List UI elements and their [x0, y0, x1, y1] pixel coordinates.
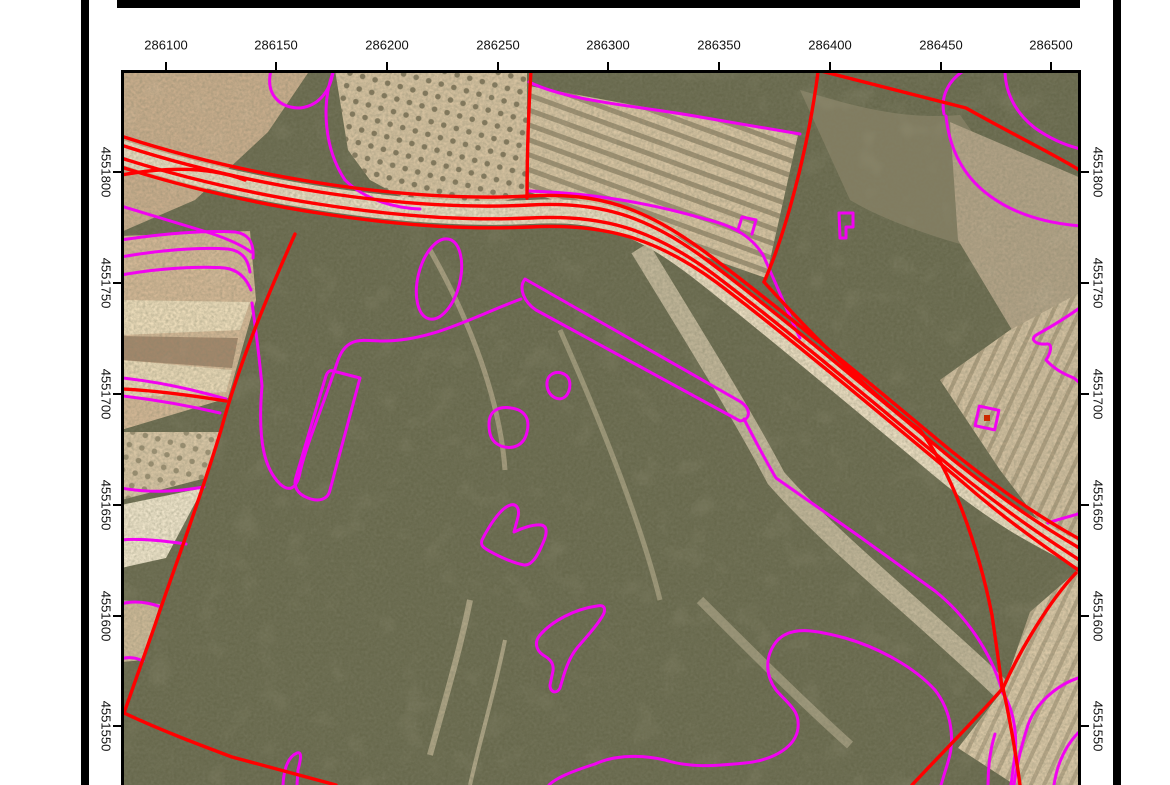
northing-label-right: 4551550: [1091, 701, 1106, 752]
northing-tick-left: [113, 171, 121, 173]
northing-label-left: 4551550: [99, 701, 114, 752]
easting-label: 286450: [919, 38, 962, 53]
northing-tick-left: [113, 504, 121, 506]
northing-tick-right: [1081, 171, 1089, 173]
northing-tick-left: [113, 393, 121, 395]
northing-tick-left: [113, 615, 121, 617]
easting-label: 286400: [808, 38, 851, 53]
easting-tick: [718, 62, 720, 70]
northing-label-right: 4551650: [1091, 480, 1106, 531]
easting-label: 286100: [144, 38, 187, 53]
northing-label-right: 4551800: [1091, 147, 1106, 198]
northing-tick-right: [1081, 725, 1089, 727]
northing-tick-right: [1081, 393, 1089, 395]
page-border-bar-left: [81, 0, 89, 785]
easting-tick: [386, 62, 388, 70]
map-viewport-frame: [121, 70, 1081, 785]
northing-label-left: 4551700: [99, 369, 114, 420]
northing-label-left: 4551750: [99, 258, 114, 309]
easting-label: 286200: [365, 38, 408, 53]
neatline-bar-top: [117, 0, 1080, 8]
map-sheet-page: 2861002861502862002862502863002863502864…: [0, 0, 1170, 785]
easting-tick: [607, 62, 609, 70]
northing-label-right: 4551750: [1091, 258, 1106, 309]
northing-label-left: 4551800: [99, 147, 114, 198]
page-border-bar-right: [1113, 0, 1121, 785]
northing-tick-left: [113, 725, 121, 727]
northing-label-left: 4551600: [99, 591, 114, 642]
easting-tick: [829, 62, 831, 70]
northing-label-left: 4551650: [99, 480, 114, 531]
easting-label: 286300: [586, 38, 629, 53]
northing-label-right: 4551700: [1091, 369, 1106, 420]
northing-tick-left: [113, 282, 121, 284]
easting-label: 286350: [697, 38, 740, 53]
northing-label-right: 4551600: [1091, 591, 1106, 642]
terrain-base: [124, 73, 1078, 785]
easting-tick: [497, 62, 499, 70]
easting-label: 286500: [1029, 38, 1072, 53]
easting-tick: [940, 62, 942, 70]
easting-tick: [275, 62, 277, 70]
easting-label: 286150: [254, 38, 297, 53]
easting-tick: [165, 62, 167, 70]
aerial-orthophoto-map: [124, 73, 1078, 785]
easting-label: 286250: [476, 38, 519, 53]
easting-tick: [1050, 62, 1052, 70]
northing-tick-right: [1081, 282, 1089, 284]
northing-tick-right: [1081, 504, 1089, 506]
northing-tick-right: [1081, 615, 1089, 617]
